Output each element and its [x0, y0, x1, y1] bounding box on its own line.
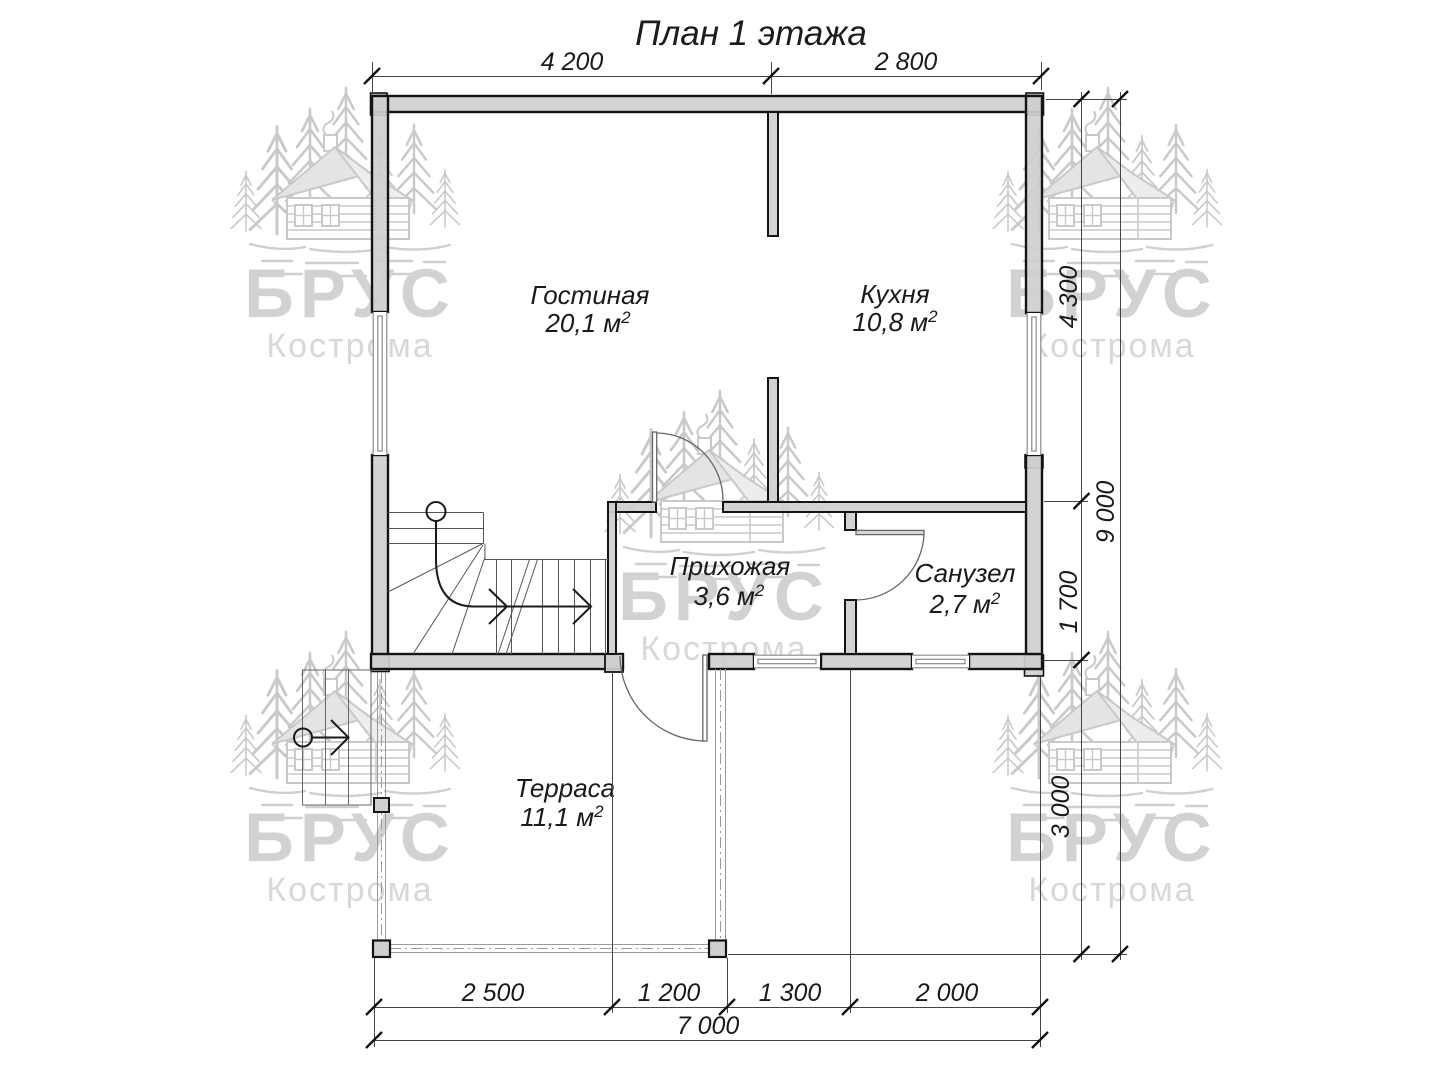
svg-text:11,1 м2: 11,1 м2 [520, 802, 604, 832]
svg-text:10,8 м2: 10,8 м2 [852, 307, 938, 337]
svg-text:1 300: 1 300 [759, 979, 822, 1007]
svg-text:Гостиная: Гостиная [531, 280, 650, 310]
svg-text:20,1 м2: 20,1 м2 [544, 308, 631, 338]
svg-text:9 000: 9 000 [1092, 481, 1120, 544]
svg-text:1 200: 1 200 [638, 979, 701, 1007]
svg-text:2 000: 2 000 [915, 979, 979, 1007]
svg-text:2 500: 2 500 [461, 979, 525, 1007]
svg-text:3 000: 3 000 [1047, 776, 1075, 839]
svg-text:Кухня: Кухня [860, 279, 929, 309]
svg-text:2,7 м2: 2,7 м2 [929, 589, 1001, 619]
svg-text:План 1 этажа: План 1 этажа [635, 14, 867, 53]
svg-text:Санузел: Санузел [915, 558, 1016, 588]
svg-text:4 300: 4 300 [1055, 266, 1083, 329]
svg-text:1 700: 1 700 [1055, 571, 1083, 634]
svg-text:3,6 м2: 3,6 м2 [694, 581, 765, 611]
svg-text:Прихожая: Прихожая [670, 551, 791, 581]
svg-text:7 000: 7 000 [677, 1012, 740, 1040]
svg-text:Терраса: Терраса [515, 773, 615, 803]
svg-text:2 800: 2 800 [874, 48, 938, 76]
svg-text:4 200: 4 200 [541, 48, 604, 76]
